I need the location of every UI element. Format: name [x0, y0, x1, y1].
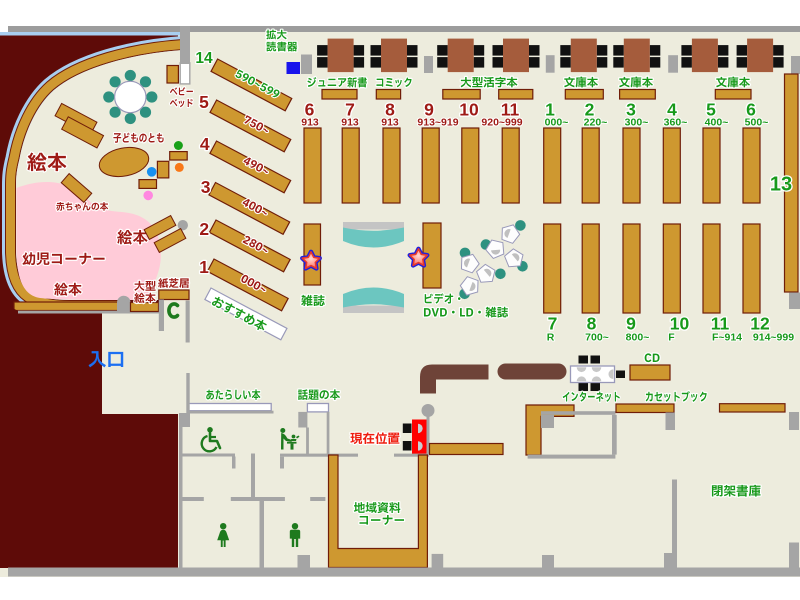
svg-text:8: 8: [587, 314, 597, 334]
svg-text:R: R: [547, 332, 555, 344]
svg-text:914~999: 914~999: [753, 332, 794, 344]
svg-text:000~: 000~: [545, 117, 569, 129]
svg-text:360~: 360~: [664, 117, 688, 129]
svg-text:F~914: F~914: [712, 332, 742, 344]
svg-text:400~: 400~: [705, 117, 729, 129]
svg-text:12: 12: [750, 314, 770, 334]
svg-text:700~: 700~: [585, 332, 609, 344]
svg-text:10: 10: [459, 100, 479, 120]
svg-text:9: 9: [626, 314, 636, 334]
svg-text:920~999: 920~999: [481, 117, 522, 129]
svg-text:1: 1: [199, 257, 209, 277]
svg-text:3: 3: [201, 177, 211, 197]
svg-text:11: 11: [711, 314, 730, 334]
svg-text:800~: 800~: [626, 332, 650, 344]
svg-text:220~: 220~: [584, 117, 608, 129]
svg-text:5: 5: [199, 92, 209, 112]
svg-text:500~: 500~: [745, 117, 769, 129]
svg-text:10: 10: [670, 314, 690, 334]
svg-text:4: 4: [200, 134, 210, 154]
svg-text:2: 2: [199, 219, 209, 239]
svg-text:14: 14: [195, 50, 213, 67]
svg-text:300~: 300~: [625, 117, 649, 129]
svg-text:913: 913: [301, 117, 319, 129]
svg-text:913~919: 913~919: [417, 117, 458, 129]
svg-text:913: 913: [341, 117, 359, 129]
svg-text:13: 13: [770, 174, 792, 196]
svg-text:913: 913: [381, 117, 399, 129]
svg-text:F: F: [668, 332, 675, 344]
svg-text:7: 7: [548, 314, 558, 334]
